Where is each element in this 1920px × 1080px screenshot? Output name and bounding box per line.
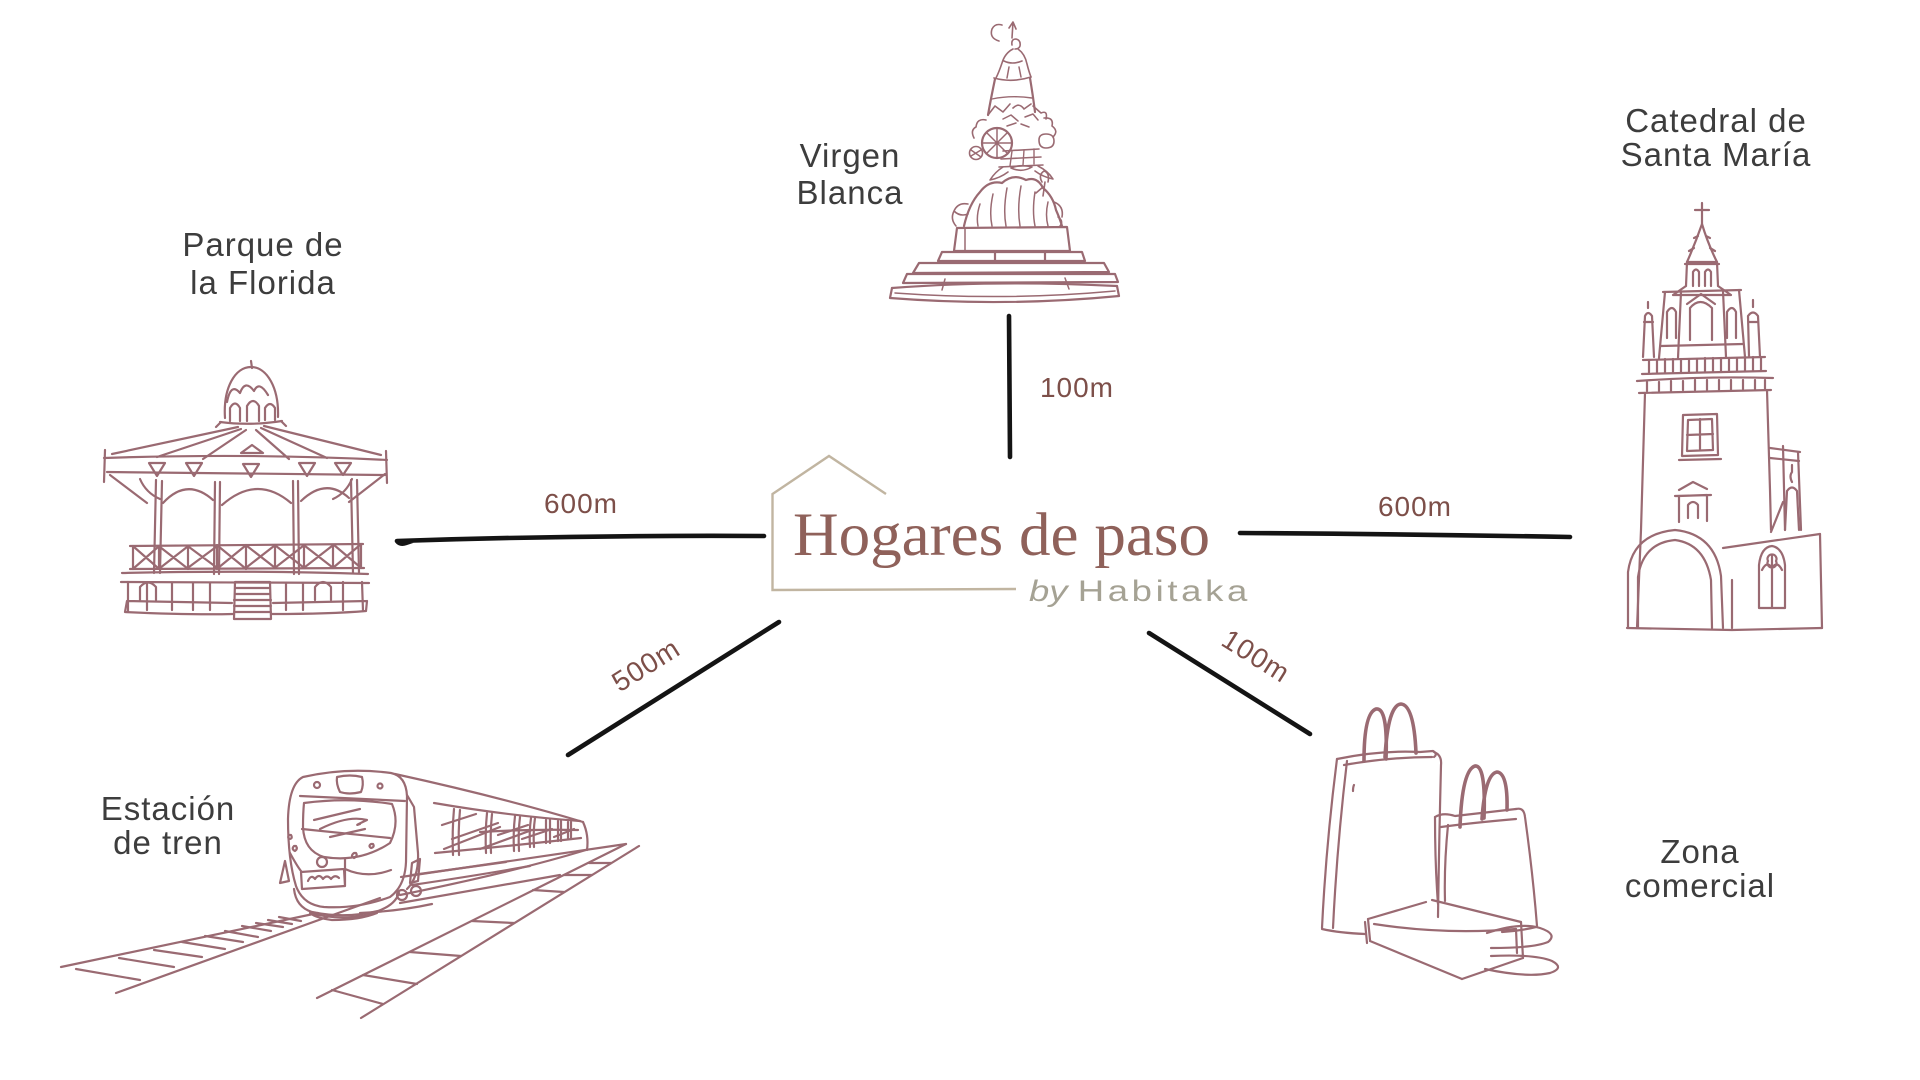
svg-text:100m: 100m bbox=[1040, 372, 1114, 403]
svg-text:Catedral de: Catedral de bbox=[1625, 102, 1807, 139]
svg-text:600m: 600m bbox=[1378, 491, 1452, 522]
svg-text:comercial: comercial bbox=[1625, 867, 1775, 904]
svg-text:de tren: de tren bbox=[113, 824, 223, 861]
svg-text:600m: 600m bbox=[544, 488, 618, 519]
svg-text:Hogares de paso: Hogares de paso bbox=[793, 502, 1210, 569]
svg-text:Estación: Estación bbox=[101, 790, 236, 827]
svg-text:by Habitaka: by Habitaka bbox=[1029, 575, 1251, 608]
svg-text:Blanca: Blanca bbox=[797, 174, 904, 211]
svg-text:Santa María: Santa María bbox=[1621, 136, 1812, 173]
svg-text:Parque de: Parque de bbox=[182, 226, 343, 263]
svg-text:Virgen: Virgen bbox=[800, 137, 901, 174]
svg-text:la Florida: la Florida bbox=[190, 264, 336, 301]
svg-text:100m: 100m bbox=[1216, 623, 1295, 689]
svg-text:Zona: Zona bbox=[1660, 833, 1739, 870]
